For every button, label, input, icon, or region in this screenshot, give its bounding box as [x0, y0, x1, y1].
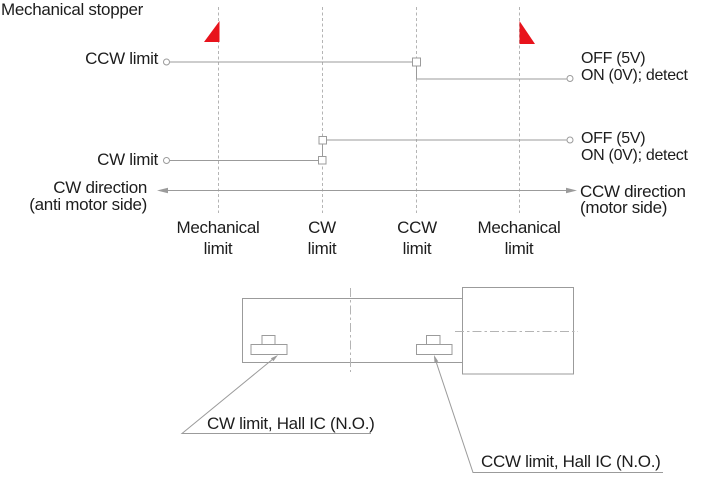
- ccw-sensor-top: [427, 336, 441, 345]
- ccw-limit-signal-label: CCW limit: [0, 49, 158, 69]
- mechanical-stopper-icon-left: [204, 21, 220, 42]
- cw-sensor-top: [262, 336, 275, 345]
- mechanical-stopper-icon-right: [520, 21, 536, 44]
- position-gridlines: [219, 7, 520, 213]
- direction-label-right: CCW direction (motor side): [580, 184, 686, 216]
- cw-signal-step-node-high: [319, 137, 327, 145]
- ccw-hall-ic-callout-label: CCW limit, Hall IC (N.O.): [481, 452, 660, 472]
- cw-signal-end-node: [567, 137, 573, 143]
- limit-switch-diagram: Mechanical stopper CCW limit CW limit OF…: [0, 0, 701, 479]
- direction-axis: [157, 188, 577, 194]
- cw-signal-start-node: [164, 158, 170, 164]
- position-line1: Mechanical: [454, 217, 584, 238]
- ccw-signal-step-node: [413, 58, 421, 66]
- cw-signal-states: OFF (5V) ON (0V); detect: [581, 130, 688, 164]
- cw-limit-signal-label: CW limit: [0, 150, 158, 170]
- ccw-direction-line2: (motor side): [580, 200, 686, 216]
- arrow-right-icon: [566, 188, 577, 194]
- arrow-left-icon: [157, 188, 168, 194]
- ccw-signal-states: OFF (5V) ON (0V); detect: [581, 50, 688, 84]
- cw-direction-line1: CW direction: [0, 179, 147, 196]
- cw-state-off: OFF (5V): [581, 130, 688, 147]
- position-line2: limit: [454, 238, 584, 259]
- cw-hall-ic-callout-label: CW limit, Hall IC (N.O.): [207, 414, 375, 434]
- cw-state-on: ON (0V); detect: [581, 147, 688, 164]
- ccw-callout-arrow-icon: [434, 355, 438, 363]
- ccw-signal-start-node: [164, 59, 170, 65]
- ccw-limit-waveform: [164, 58, 574, 82]
- cw-sensor-base: [251, 345, 287, 355]
- ccw-hall-ic-sensor: [417, 336, 453, 355]
- direction-label-left: CW direction (anti motor side): [0, 179, 147, 213]
- diagram-title: Mechanical stopper: [1, 0, 143, 20]
- actuator-outline: [243, 288, 579, 375]
- cw-direction-line2: (anti motor side): [0, 196, 147, 213]
- ccw-signal-end-node: [567, 76, 573, 82]
- motor-body-rect: [463, 288, 574, 375]
- ccw-state-on: ON (0V); detect: [581, 67, 688, 84]
- cw-hall-ic-sensor: [251, 336, 287, 355]
- position-label-mechanical-limit-right: Mechanical limit: [454, 217, 584, 259]
- ccw-state-off: OFF (5V): [581, 50, 688, 67]
- actuator-body-rect: [243, 299, 463, 363]
- ccw-sensor-base: [417, 345, 453, 355]
- cw-signal-step-node-low: [319, 157, 327, 165]
- cw-limit-waveform: [164, 137, 574, 165]
